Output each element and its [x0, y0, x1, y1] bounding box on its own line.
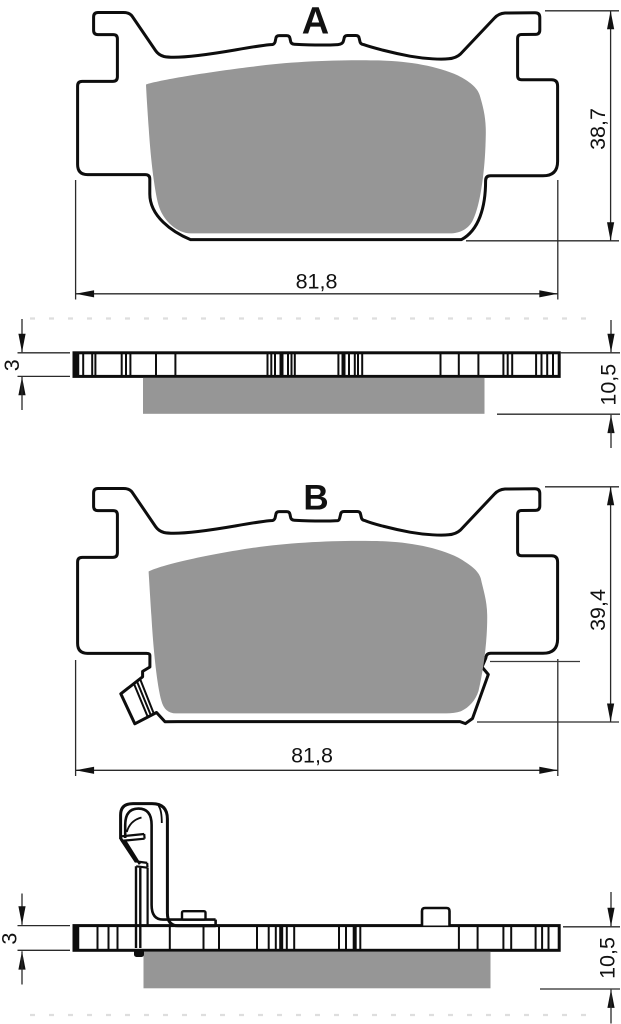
svg-text:39,4: 39,4	[586, 589, 610, 631]
svg-text:10,5: 10,5	[596, 937, 620, 979]
svg-text:81,8: 81,8	[291, 743, 333, 767]
svg-text:B: B	[303, 479, 328, 518]
svg-text:38,7: 38,7	[586, 108, 610, 150]
svg-text:3: 3	[0, 359, 24, 371]
svg-text:10,5: 10,5	[597, 364, 621, 406]
svg-text:3: 3	[0, 933, 22, 945]
svg-text:81,8: 81,8	[296, 269, 338, 293]
svg-text:A: A	[302, 0, 329, 42]
